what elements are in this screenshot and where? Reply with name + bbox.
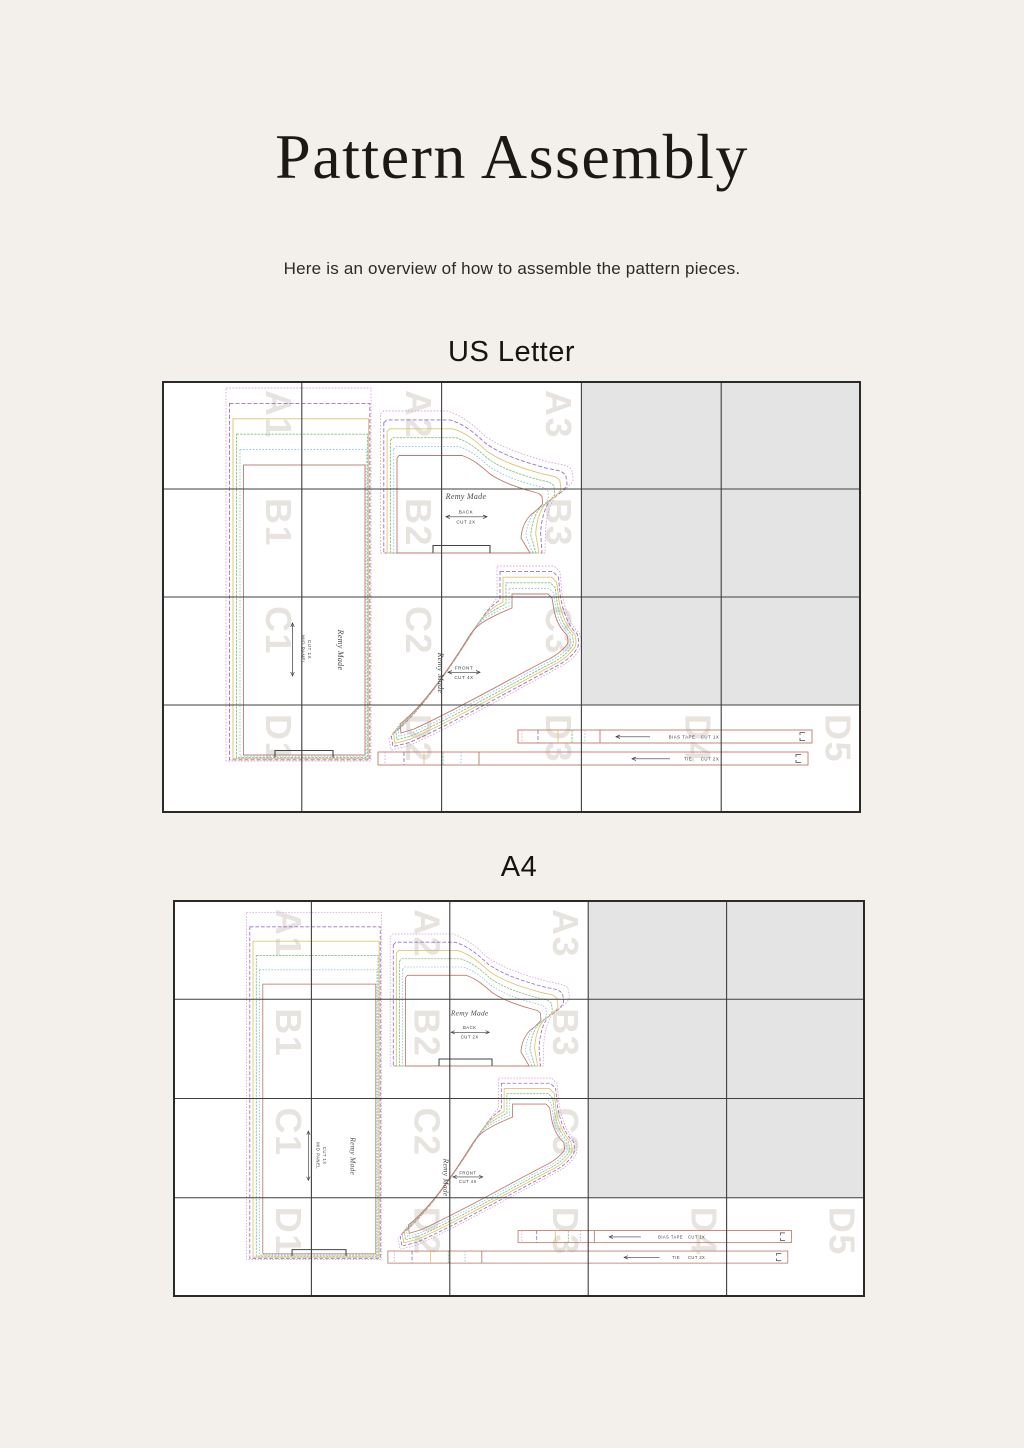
- page-cell-label: B1: [258, 498, 299, 547]
- unused-page-cell: [727, 1099, 865, 1198]
- page-cell-label: D2: [407, 1207, 448, 1256]
- back-cut: CUT 2X: [461, 1035, 479, 1040]
- unused-page-cell: [581, 381, 721, 489]
- page-cell-label: B2: [398, 498, 439, 547]
- unused-page-cell: [581, 489, 721, 597]
- page-cell-label: D5: [822, 1207, 863, 1256]
- tie-name: TIE: [684, 757, 692, 762]
- back-name: BACK: [459, 510, 474, 515]
- a4-assembly-diagram: A1A2A3B1B2B3C1C2C3D1D2D3D4D5MID PANELCUT…: [173, 900, 865, 1297]
- page-cell-label: D4: [683, 1207, 724, 1256]
- tie-name: TIE: [672, 1255, 680, 1260]
- unused-page-cell: [581, 597, 721, 705]
- page-cell-label: B1: [268, 1008, 309, 1057]
- unused-page-cell: [588, 1099, 726, 1198]
- unused-page-cell: [721, 381, 861, 489]
- brand-logo: Remy Made: [349, 1136, 358, 1175]
- a4-heading: A4: [173, 851, 865, 884]
- brand-logo-text: Remy Made: [336, 629, 345, 671]
- brand-logo: Remy Made: [436, 652, 445, 694]
- mid-panel-name: MID PANEL: [316, 1142, 321, 1169]
- page-cell-label: B2: [407, 1008, 448, 1057]
- front-name: FRONT: [455, 666, 473, 671]
- bias-tape-cut: CUT 1X: [688, 1235, 705, 1240]
- page-cell-label: C2: [398, 606, 439, 655]
- brand-logo-text: Remy Made: [349, 1136, 358, 1175]
- page-cell-label: C1: [258, 606, 299, 655]
- page-cell-label: A3: [545, 909, 586, 958]
- unused-page-cell: [727, 999, 865, 1098]
- front-cut: CUT 4X: [459, 1179, 477, 1184]
- unused-page-cell: [721, 489, 861, 597]
- page-cell-label: C1: [268, 1108, 309, 1157]
- page-cell-label: A1: [268, 909, 309, 958]
- back-name: BACK: [463, 1025, 476, 1030]
- page-cell-label: C2: [407, 1108, 448, 1157]
- page-cell-label: B3: [545, 1008, 586, 1057]
- front-cut: CUT 4X: [454, 675, 473, 680]
- us-letter-assembly-diagram: A1A2A3B1B2B3C1C2C3D1D2D3D4D5MID PANELCUT…: [162, 381, 861, 813]
- brand-logo: Remy Made: [336, 629, 345, 671]
- unused-page-cell: [588, 900, 726, 999]
- page-cell-label: C3: [538, 606, 579, 655]
- mid-panel-cut: CUT 1X: [322, 1147, 327, 1165]
- front-name: FRONT: [459, 1170, 476, 1175]
- page-cell-label: D1: [268, 1207, 309, 1256]
- brand-logo: Remy Made: [450, 1009, 489, 1018]
- page-subtitle: Here is an overview of how to assemble t…: [0, 259, 1024, 279]
- back-cut: CUT 2X: [456, 520, 475, 525]
- unused-page-cell: [727, 900, 865, 999]
- unused-page-cell: [588, 999, 726, 1098]
- bias-tape-name: BIAS TAPE: [658, 1235, 683, 1240]
- tie-cut: CUT 2X: [701, 757, 720, 762]
- page-cell-label: A2: [398, 390, 439, 439]
- page-cell-label: A1: [258, 390, 299, 439]
- brand-logo-text: Remy Made: [450, 1009, 489, 1018]
- page-title: Pattern Assembly: [0, 122, 1024, 192]
- page-cell-label: D3: [545, 1207, 586, 1256]
- unused-page-cell: [721, 597, 861, 705]
- page-cell-label: D1: [258, 714, 299, 763]
- brand-logo-text: Remy Made: [436, 652, 445, 694]
- tie-cut: CUT 2X: [688, 1255, 705, 1260]
- mid-panel-cut: CUT 1X: [307, 640, 312, 659]
- brand-logo-text: Remy Made: [445, 492, 487, 501]
- brand-logo: Remy Made: [445, 492, 487, 501]
- page-cell-label: A3: [538, 390, 579, 439]
- page-cell-label: D5: [817, 714, 858, 763]
- bias-tape-cut: CUT 1X: [701, 735, 720, 740]
- us-letter-heading: US Letter: [162, 336, 861, 369]
- bias-tape-name: BIAS TAPE: [669, 735, 696, 740]
